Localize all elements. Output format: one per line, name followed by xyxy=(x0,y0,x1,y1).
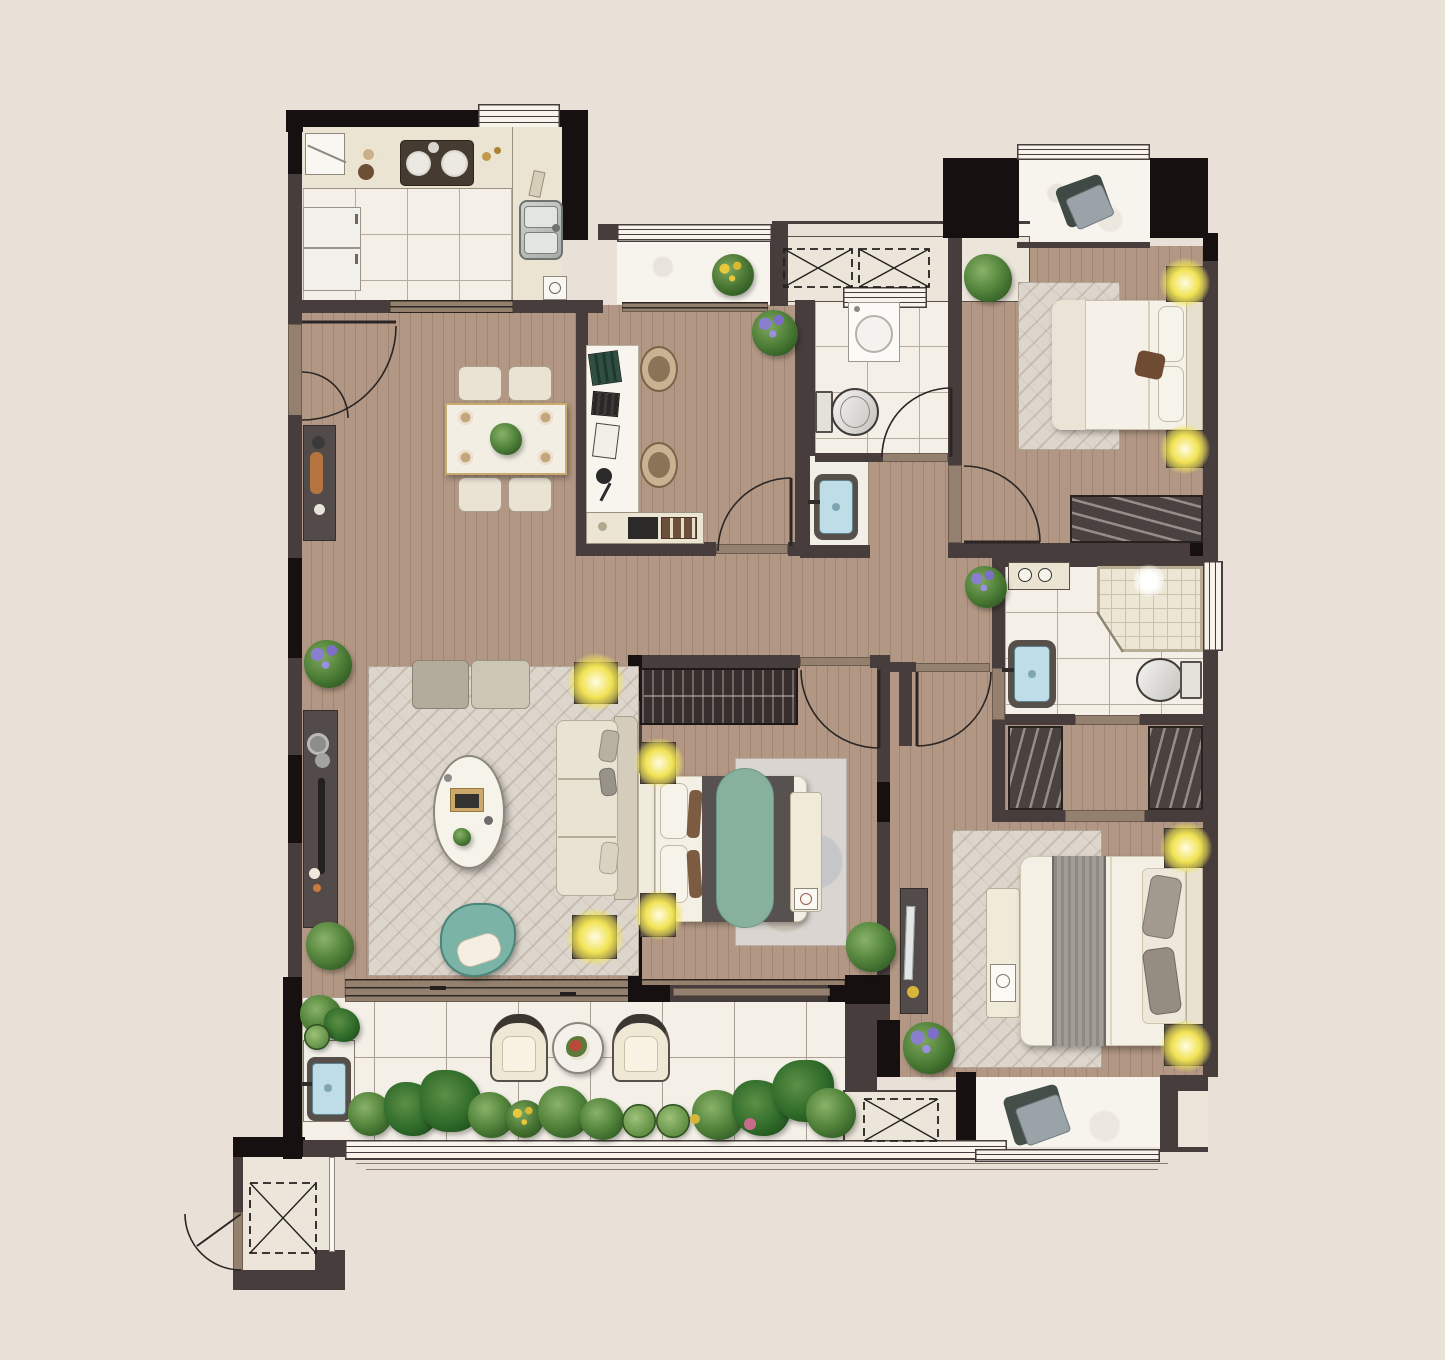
wall-segment xyxy=(283,977,302,1159)
wall-segment xyxy=(1140,714,1204,725)
place-setting xyxy=(538,410,553,425)
console-plate xyxy=(315,753,330,768)
bath-door-threshold xyxy=(882,453,948,462)
floor-drain-cap xyxy=(549,282,561,294)
master-bath-entry-threshold xyxy=(992,668,1005,720)
washer-drum xyxy=(855,315,893,353)
desk-chair-seat xyxy=(648,356,670,382)
nightstand-lamp-glow xyxy=(634,890,684,940)
wall-segment xyxy=(795,300,815,456)
console-soundbar xyxy=(318,778,325,874)
table-plant xyxy=(453,828,471,846)
console-flower xyxy=(907,986,919,998)
study-balcony-door-threshold xyxy=(622,302,768,312)
wall-segment xyxy=(233,1137,305,1157)
hallway-floor xyxy=(582,545,995,662)
potted-plant xyxy=(752,310,798,356)
bedroom2-headboard xyxy=(1186,298,1203,432)
wall-segment xyxy=(1203,233,1218,261)
balcony-railing xyxy=(345,1140,1007,1160)
dining-chair xyxy=(508,366,552,401)
master-duvet-seam xyxy=(1110,857,1112,1045)
planter-shrub xyxy=(806,1088,856,1138)
exterior-sill-line xyxy=(356,1160,1168,1164)
refrigerator xyxy=(303,207,361,291)
shower-head xyxy=(1134,564,1164,598)
wall-segment xyxy=(642,655,800,668)
floor-plan xyxy=(0,0,1445,1360)
cabinet-decor-dot xyxy=(598,522,607,531)
sink-faucet xyxy=(552,224,560,232)
table-centerpiece-plant xyxy=(490,423,522,455)
balcony-faucet xyxy=(301,1082,312,1086)
spice-jar xyxy=(494,147,501,154)
flower-pot xyxy=(712,254,754,296)
mb-faucet xyxy=(1002,668,1014,672)
cabinet-decor-wood xyxy=(661,517,697,539)
study-balcony-window xyxy=(617,224,772,242)
balcony-door-tick xyxy=(430,986,446,990)
floor-lamp-glow xyxy=(567,653,625,711)
bedroom2-accent-pillow xyxy=(1134,349,1167,380)
refrigerator-handle xyxy=(355,214,358,224)
bedroom3-pillow xyxy=(660,783,688,839)
master-bath-window xyxy=(1203,561,1223,651)
window-well-inner xyxy=(1178,1091,1208,1147)
nightstand-lamp-glow xyxy=(634,738,684,788)
wall-segment xyxy=(992,810,1065,822)
kitchen-plate xyxy=(360,146,377,163)
sofa-pillow xyxy=(598,841,619,875)
kitchen-sliding-door-threshold xyxy=(390,300,513,313)
burner-small xyxy=(428,142,439,153)
decor-cup xyxy=(314,504,325,515)
ottoman-bench xyxy=(471,660,530,709)
refrigerator-split xyxy=(303,247,361,249)
wall-segment xyxy=(288,132,302,174)
wall-segment xyxy=(877,662,890,784)
wall-segment xyxy=(1017,242,1150,248)
desk-books xyxy=(591,391,620,417)
dining-chair xyxy=(458,477,502,512)
planter-topiary xyxy=(622,1104,656,1138)
wall-segment xyxy=(513,300,603,313)
closet-wardrobe-right xyxy=(1148,726,1203,810)
wall-segment xyxy=(948,296,962,465)
balcony-door-tick xyxy=(560,992,576,996)
desk-tablet xyxy=(592,423,620,460)
cabinet-decor-dark xyxy=(628,517,658,539)
wall-segment xyxy=(770,224,788,306)
desk-chair-seat xyxy=(648,452,670,478)
console-candle xyxy=(309,868,320,879)
side-table-decor xyxy=(566,1036,590,1060)
lounge-seat xyxy=(624,1036,658,1072)
desk-books xyxy=(588,350,622,386)
mb-basin-drain xyxy=(1028,670,1036,678)
potted-plant xyxy=(304,640,352,688)
sofa-cushion-line xyxy=(558,836,616,838)
potted-plant xyxy=(964,254,1012,302)
wall-segment xyxy=(948,238,962,298)
desk-lamp xyxy=(596,468,612,484)
bedroom2-door-threshold xyxy=(948,465,962,543)
wall-segment xyxy=(233,1270,345,1290)
niche-faucet xyxy=(808,500,820,504)
wall-segment xyxy=(288,300,390,313)
dining-chair xyxy=(508,477,552,512)
dining-chair xyxy=(458,366,502,401)
burner xyxy=(441,150,468,177)
decor-bottle xyxy=(310,452,323,494)
wall-segment xyxy=(828,985,890,1002)
place-setting xyxy=(538,450,553,465)
wall-segment xyxy=(598,224,618,240)
potted-plant xyxy=(306,922,354,970)
niche-basin-drain xyxy=(832,503,840,511)
wall-segment xyxy=(877,1020,900,1077)
planter-shrub xyxy=(580,1098,624,1140)
wall-segment xyxy=(288,755,302,843)
toilet-seat xyxy=(840,396,870,428)
mb-toilet-bowl xyxy=(1136,658,1184,702)
burner xyxy=(406,151,431,176)
wall-segment xyxy=(800,545,870,558)
kitchen-pot xyxy=(358,164,374,180)
balcony-basin-drain xyxy=(324,1084,332,1092)
table-cup xyxy=(444,774,452,782)
corridor-door-threshold xyxy=(914,663,990,672)
potted-plant xyxy=(965,566,1007,608)
ottoman-bench xyxy=(412,660,469,709)
wall-segment xyxy=(233,1157,243,1212)
bench-tray-ring xyxy=(800,893,812,905)
elevator-door-frame xyxy=(329,1157,335,1252)
planter-flower-accent xyxy=(744,1118,756,1130)
console-decor xyxy=(313,884,321,892)
vanity-knob xyxy=(1038,568,1052,582)
wall-segment xyxy=(1005,714,1075,725)
entry-threshold xyxy=(288,324,302,416)
nightstand-lamp-glow xyxy=(1160,822,1212,874)
floor-lamp-glow xyxy=(566,908,624,966)
planter-shrub xyxy=(304,1024,330,1050)
wall-segment xyxy=(1203,649,1218,721)
wall-segment xyxy=(628,985,670,1002)
wall-segment xyxy=(315,1250,345,1272)
planter-topiary xyxy=(656,1104,690,1138)
console-plate xyxy=(307,733,329,755)
master-gray-throw xyxy=(1052,856,1106,1046)
closet-bottom-threshold xyxy=(1065,810,1145,822)
master-bay-window-floor xyxy=(975,1077,1160,1147)
wall-segment xyxy=(288,415,302,979)
sink-basin xyxy=(524,232,558,254)
wall-segment xyxy=(1145,810,1205,822)
wall-segment xyxy=(288,558,302,658)
bedroom2-wardrobe xyxy=(1070,495,1203,543)
closet-top-threshold xyxy=(1075,715,1140,725)
elevator-threshold xyxy=(233,1212,243,1270)
closet-wardrobe-left xyxy=(1008,726,1063,810)
decor-bowl xyxy=(312,436,325,449)
potted-plant xyxy=(846,922,896,972)
nightstand-lamp-glow xyxy=(1160,424,1210,474)
table-cup xyxy=(484,816,493,825)
wall-segment xyxy=(795,456,810,556)
coffee-table xyxy=(433,755,505,869)
place-setting xyxy=(458,410,473,425)
middle-bedroom-door-threshold xyxy=(800,657,872,666)
vanity-knob xyxy=(1018,568,1032,582)
master-bench-ring xyxy=(996,974,1010,988)
wall-segment xyxy=(815,453,883,462)
middle-bedroom-window-band xyxy=(673,988,830,996)
wall-segment xyxy=(899,670,912,746)
bedroom2-duvet-fold xyxy=(1052,300,1086,430)
place-setting xyxy=(458,450,473,465)
planter-flower-accent xyxy=(690,1114,700,1124)
wall-segment xyxy=(877,782,890,824)
wall-segment xyxy=(992,720,1005,812)
bookshelf-rail xyxy=(644,695,794,697)
study-door-threshold xyxy=(716,544,788,554)
table-books xyxy=(455,794,479,808)
nightstand-lamp-glow xyxy=(1160,1020,1212,1072)
wall-segment xyxy=(1150,158,1208,238)
mb-toilet-tank xyxy=(1180,661,1202,699)
sofa-pillow xyxy=(598,767,617,797)
refrigerator-handle xyxy=(355,254,358,264)
lounge-seat xyxy=(502,1036,536,1072)
exterior-sill-line xyxy=(366,1166,1158,1170)
wall-segment xyxy=(943,158,1019,238)
bedroom3-green-runner xyxy=(716,768,774,928)
washer-knob xyxy=(854,306,860,312)
nightstand-lamp-glow xyxy=(1160,258,1210,308)
wall-segment xyxy=(576,542,716,556)
wall-segment xyxy=(1203,719,1218,821)
bedroom2-bay-window xyxy=(1017,144,1150,160)
potted-plant xyxy=(903,1022,955,1074)
hallway-floor-2 xyxy=(868,456,948,548)
wall-segment xyxy=(845,1002,877,1092)
spice-jar xyxy=(482,152,491,161)
